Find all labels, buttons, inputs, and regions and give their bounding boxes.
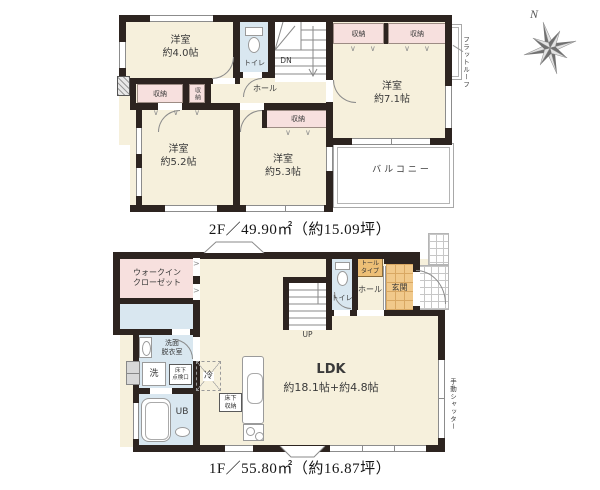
washroom-label-line: 洗面 [150, 339, 194, 348]
manual-shutter-label: 手動シャッター [448, 374, 456, 434]
hall-1f-label: ホール [355, 285, 385, 295]
wall [113, 298, 200, 304]
refrigerator-space: 冷 [196, 361, 221, 391]
window-tick [394, 445, 395, 452]
floorplan-canvas: 収納 収納 収納 収納 収納 ∨∨ ∨ ∨∨ ∨∨ ∨∨ [0, 0, 600, 490]
door-opening [334, 310, 350, 316]
underfloor-inspection-hatch: 床下 点検口 [169, 364, 192, 385]
shoe-cabinet-label: タイプ [358, 268, 382, 275]
stove-burner [246, 427, 255, 436]
hatch-label: 床下 [170, 368, 191, 375]
door-opening [150, 388, 172, 394]
door-opening [172, 329, 190, 335]
storage-room [120, 304, 194, 330]
wall [283, 277, 289, 330]
wall [113, 252, 420, 259]
water-heater [126, 361, 140, 385]
compass-rose: N [508, 4, 592, 84]
stove-icon [243, 424, 264, 441]
compass-north-label: N [529, 7, 539, 21]
underfloor-storage-label: 収納 [220, 403, 241, 410]
window [330, 445, 426, 452]
folding-door-mark: > [193, 260, 200, 268]
window-tick [438, 398, 445, 399]
window [225, 445, 253, 452]
kitchen-counter [242, 356, 264, 424]
washing-machine-label: 洗 [148, 370, 159, 379]
wall [283, 277, 332, 283]
floor1-caption: 1F／55.80㎡（約16.87坪） [150, 457, 450, 478]
door-opening [357, 310, 384, 316]
wall [384, 252, 420, 264]
bay-window-top [203, 241, 265, 254]
ldk-label: LDK 約18.1帖+約4.8帖 [268, 362, 394, 395]
folding-door-mark: > [193, 287, 200, 295]
underfloor-storage: 床下 収納 [219, 393, 242, 412]
washing-machine: 洗 [142, 362, 166, 386]
toilet-1f-label: トイレ [329, 294, 355, 303]
kitchen-sink [247, 373, 263, 404]
toilet-icon [335, 262, 350, 270]
ldk-name: LDK [268, 362, 394, 379]
bath-label: UB [170, 407, 194, 419]
wic-label-line: ウォークイン [120, 268, 194, 278]
stove-burner [255, 432, 264, 441]
shoe-cabinet-label: トール [358, 260, 382, 267]
hatch-label: 点検口 [170, 375, 191, 382]
window [133, 403, 139, 439]
porch-steps [428, 233, 449, 265]
toilet-bowl-icon [337, 271, 348, 286]
walk-in-closet-label: ウォークイン クローゼット [120, 268, 194, 289]
stairs-up-label: UP [289, 330, 326, 340]
window-tick [362, 445, 363, 452]
underfloor-storage-label: 床下 [220, 395, 241, 402]
compass-star [517, 15, 583, 81]
wall [113, 252, 120, 335]
bathtub-inner [145, 402, 169, 440]
water-heater-line [127, 373, 139, 374]
bathtub-icon [141, 398, 171, 442]
wic-label-line: クローゼット [120, 278, 194, 288]
stairs-1f-treads [289, 283, 326, 330]
door-opening [193, 337, 200, 361]
stairs-1f [289, 283, 326, 330]
washroom-label-line: 脱衣室 [150, 348, 194, 357]
refrigerator-label: 冷 [203, 372, 214, 381]
window [438, 360, 445, 438]
shoe-cabinet: トール タイプ [357, 258, 383, 277]
bath-drain-icon [175, 427, 190, 437]
washroom-label: 洗面 脱衣室 [150, 339, 194, 357]
entrance-label: 玄関 [386, 283, 413, 293]
ldk-size: 約18.1帖+約4.8帖 [268, 381, 394, 395]
